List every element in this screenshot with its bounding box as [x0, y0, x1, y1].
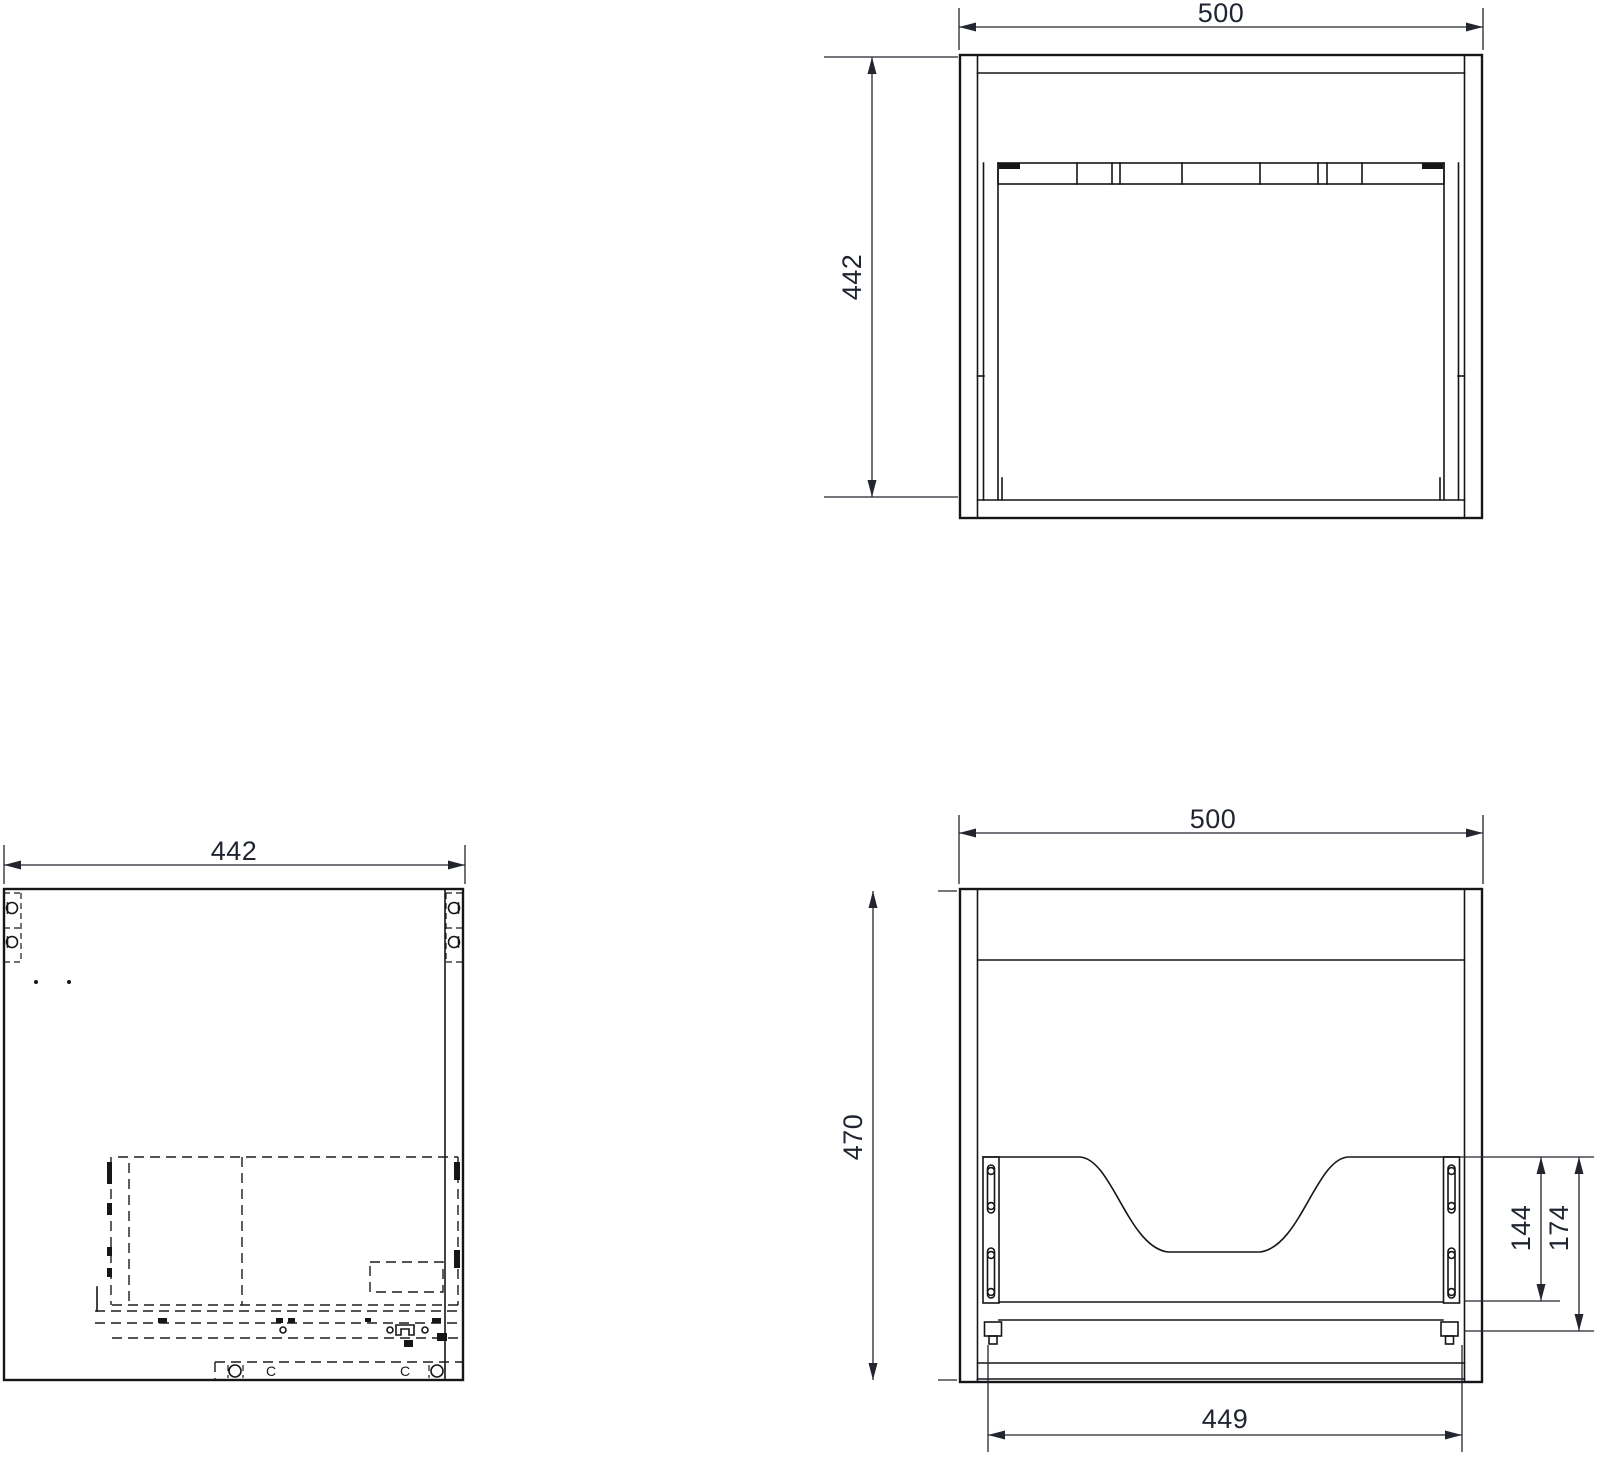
arrow-icon [4, 861, 21, 870]
top-view: 500 442 [824, 0, 1483, 518]
dim-depth-side-view: 442 [4, 836, 465, 884]
top-view-outline [960, 55, 1482, 518]
screw-icon [432, 1318, 441, 1323]
dim-label: 500 [1198, 0, 1245, 28]
foot-bracket [1446, 1336, 1454, 1344]
arrow-icon [868, 480, 877, 497]
dim-depth-top-view: 442 [824, 57, 958, 497]
slide-mount-mark [107, 1247, 112, 1256]
arrow-icon [1537, 1157, 1546, 1174]
arrow-icon [448, 861, 465, 870]
dim-label: 500 [1190, 804, 1237, 834]
screw-icon [280, 1327, 286, 1333]
arrow-icon [959, 23, 976, 32]
basin-cutout-curve [983, 1157, 1459, 1252]
glide-foot-icon [396, 1325, 414, 1335]
top-view-carcass [960, 55, 1482, 518]
screw-icon [276, 1318, 283, 1323]
slide-mount-mark [454, 1250, 460, 1268]
cam-lock-channel-right [446, 893, 462, 963]
arrow-icon [868, 57, 877, 74]
dim-label: 449 [1202, 1404, 1249, 1434]
arrow-icon [1537, 1284, 1546, 1301]
arrow-icon [1575, 1157, 1584, 1174]
arrow-icon [959, 829, 976, 838]
screw-icon [437, 1333, 447, 1341]
dim-basin-drops: 144 174 [1459, 1157, 1594, 1331]
front-view: 500 470 144 174 [838, 804, 1594, 1452]
slide-mount-mark [454, 1162, 460, 1180]
foot-bracket [985, 1322, 1002, 1336]
screw-icon [387, 1327, 393, 1333]
arrow-icon [1575, 1314, 1584, 1331]
dim-label: 470 [838, 1114, 868, 1161]
cad-canvas: 500 442 [0, 0, 1600, 1459]
screw-icon [1448, 1252, 1455, 1259]
drawing-sheet: 500 442 [0, 0, 1600, 1459]
arrow-icon [1445, 1431, 1462, 1440]
rail-bracket [1444, 1157, 1460, 1303]
hanging-rail-right [1441, 1157, 1460, 1344]
screw-icon [1448, 1289, 1455, 1296]
dim-inner-width-front-view: 449 [988, 1345, 1462, 1452]
cam-marker-label: C [266, 1363, 276, 1379]
cam-lock-icon [431, 1365, 443, 1377]
pilot-hole-icon [34, 980, 38, 984]
dim-label: 144 [1506, 1205, 1536, 1252]
screw-icon [988, 1252, 995, 1259]
lower-stretcher [999, 1302, 1443, 1320]
dim-height-front-view: 470 [838, 891, 957, 1380]
screw-icon [1448, 1168, 1455, 1175]
screw-icon [988, 1289, 995, 1296]
rail-bracket [983, 1157, 999, 1303]
clip-cap [1422, 163, 1443, 169]
dim-label: 174 [1544, 1205, 1574, 1252]
screw-icon [365, 1318, 371, 1322]
cam-lock-icon [229, 1365, 241, 1377]
drawer-slide-hidden [95, 1157, 462, 1347]
dim-label: 442 [837, 254, 867, 301]
foot-bracket [989, 1336, 997, 1344]
top-view-drawer-box [984, 163, 1459, 500]
side-view-panel [4, 889, 463, 1380]
slide-mount-mark [107, 1203, 112, 1215]
screw-icon [288, 1318, 295, 1323]
dim-width-top-view: 500 [959, 0, 1483, 50]
hidden-bracket-outline [370, 1262, 443, 1292]
cam-marker-label: C [400, 1363, 410, 1379]
arrow-icon [1466, 23, 1483, 32]
bottom-rail-hidden: C C [215, 1362, 462, 1379]
side-view-outline [4, 889, 463, 1380]
drawer-front-band [998, 163, 1444, 184]
dim-width-front-view: 500 [959, 804, 1483, 884]
basin-back-panel [983, 1157, 1459, 1252]
cam-lock-channel-left [4, 893, 21, 963]
arrow-icon [1466, 829, 1483, 838]
screw-icon [422, 1327, 428, 1333]
dim-label: 442 [211, 836, 258, 866]
arrow-icon [988, 1431, 1005, 1440]
slide-mount-mark [107, 1162, 112, 1184]
hanging-rail-left [983, 1157, 1002, 1344]
front-view-carcass [960, 889, 1482, 1382]
screw-icon [158, 1318, 167, 1323]
slide-mount-mark [107, 1268, 112, 1277]
arrow-icon [869, 1363, 878, 1380]
screw-icon [1448, 1203, 1455, 1210]
pilot-hole-icon [67, 980, 71, 984]
front-view-outline [960, 889, 1482, 1382]
screw-icon [988, 1168, 995, 1175]
screw-icon [988, 1203, 995, 1210]
arrow-icon [869, 891, 878, 908]
foot-bracket [1441, 1322, 1458, 1336]
glide-foot-icon [404, 1340, 413, 1347]
side-view: C C 442 [4, 836, 465, 1380]
clip-cap [999, 163, 1020, 169]
